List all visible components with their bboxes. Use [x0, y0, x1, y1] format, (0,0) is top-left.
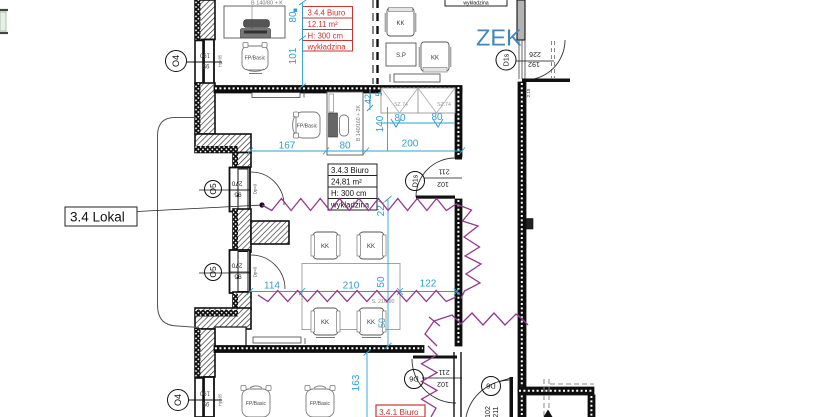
svg-text:95: 95 [202, 400, 209, 406]
svg-text:226: 226 [529, 50, 541, 57]
svg-text:200: 200 [402, 139, 419, 150]
svg-text:190: 190 [199, 52, 210, 58]
svg-text:FP/Basic: FP/Basic [297, 124, 318, 130]
svg-text:95: 95 [234, 273, 242, 280]
svg-text:H: 300 cm: H: 300 cm [331, 189, 367, 198]
svg-text:D6: D6 [409, 374, 419, 383]
svg-text:140: 140 [375, 115, 386, 132]
svg-text:KK: KK [431, 56, 439, 62]
svg-text:102: 102 [485, 406, 492, 417]
svg-text:5: 5 [374, 91, 384, 96]
svg-text:Dp=0: Dp=0 [253, 266, 258, 277]
svg-text:211: 211 [493, 406, 500, 417]
svg-text:50: 50 [377, 318, 387, 328]
svg-text:80: 80 [394, 113, 406, 124]
svg-text:211: 211 [438, 168, 449, 175]
svg-text:O4: O4 [173, 394, 183, 406]
svg-text:KK: KK [367, 320, 375, 326]
svg-text:270: 270 [231, 262, 242, 269]
svg-text:3.4.4 Biuro: 3.4.4 Biuro [308, 9, 346, 18]
svg-text:102: 102 [437, 180, 449, 187]
svg-text:KK: KK [321, 320, 329, 326]
svg-text:S.P: S.P [396, 53, 406, 59]
svg-text:FP/Basic: FP/Basic [245, 56, 266, 62]
svg-text:Dp=0: Dp=0 [253, 183, 258, 194]
svg-text:wykładzina: wykładzina [307, 43, 347, 52]
svg-text:101: 101 [288, 47, 299, 64]
svg-text:KK: KK [367, 244, 375, 250]
svg-text:192: 192 [528, 60, 540, 67]
svg-text:FP/Basic: FP/Basic [246, 401, 267, 407]
svg-text:SZ.74: SZ.74 [394, 102, 408, 108]
svg-text:D1s: D1s [504, 53, 511, 66]
svg-text:80: 80 [288, 11, 299, 23]
svg-text:2.15: 2.15 [526, 88, 531, 97]
svg-text:95: 95 [234, 191, 242, 198]
svg-text:H: 300 cm: H: 300 cm [308, 32, 344, 41]
svg-text:80: 80 [339, 141, 351, 152]
svg-text:3.4.1 Biuro: 3.4.1 Biuro [379, 408, 419, 417]
svg-text:95: 95 [202, 62, 209, 68]
svg-text:12.11 m²: 12.11 m² [308, 20, 339, 29]
svg-text:KK: KK [396, 21, 404, 27]
svg-text:211: 211 [438, 368, 449, 375]
svg-text:D6: D6 [486, 381, 496, 390]
svg-text:FP/Basic: FP/Basic [310, 401, 331, 407]
svg-text:102: 102 [437, 380, 449, 387]
svg-text:B 140/160 + 2K: B 140/160 + 2K [356, 105, 362, 141]
svg-text:3.4.3 Biuro: 3.4.3 Biuro [331, 166, 369, 175]
svg-text:ZEK: ZEK [476, 25, 522, 51]
svg-text:122: 122 [420, 279, 437, 290]
svg-text:3.4 Lokal: 3.4 Lokal [70, 210, 125, 225]
svg-text:O5: O5 [208, 266, 218, 278]
svg-text:KK: KK [321, 244, 329, 250]
svg-text:wykładzina: wykładzina [463, 0, 488, 6]
svg-text:24,81 m²: 24,81 m² [331, 178, 362, 187]
svg-text:42: 42 [363, 94, 373, 104]
svg-text:Hp=85: Hp=85 [218, 54, 223, 67]
svg-text:163: 163 [351, 374, 362, 391]
svg-text:SZ.74: SZ.74 [437, 102, 451, 108]
svg-text:D1s: D1s [413, 174, 420, 187]
svg-text:B 140/80 + K: B 140/80 + K [251, 1, 283, 7]
svg-text:S. 210/90: S. 210/90 [371, 299, 394, 305]
svg-text:50: 50 [376, 276, 387, 288]
svg-text:167: 167 [279, 141, 296, 152]
svg-text:270: 270 [231, 180, 242, 187]
svg-text:O5: O5 [208, 183, 218, 195]
svg-text:O4: O4 [171, 55, 181, 67]
svg-text:190: 190 [199, 390, 210, 396]
